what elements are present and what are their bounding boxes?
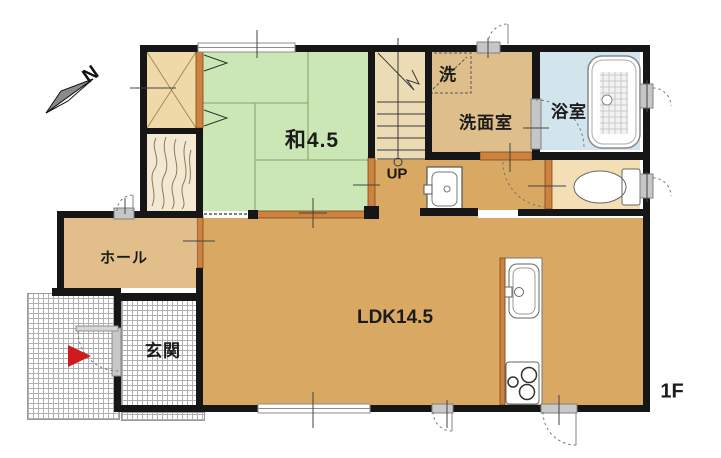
toilet-door xyxy=(545,158,552,209)
room-label-laundry: 洗 xyxy=(439,61,457,86)
stairs-floor xyxy=(375,52,425,160)
door-ldk-south-small xyxy=(432,404,453,413)
room-label-washitsu: 和4.5 xyxy=(285,124,339,154)
stairs-up-label: UP xyxy=(387,166,408,183)
entrance-door xyxy=(112,328,121,376)
room-label-bathroom: 浴室 xyxy=(551,98,587,123)
senmen-window-arc xyxy=(488,24,508,44)
north-arrow-icon xyxy=(46,79,93,113)
floor-label: 1F xyxy=(660,381,683,404)
room-label-genkan: 玄関 xyxy=(145,337,181,362)
room-label-hall: ホール xyxy=(100,247,148,268)
kitchen xyxy=(504,258,542,405)
washitsu-fusuma xyxy=(256,211,368,218)
room-label-senmenshitsu: 洗面室 xyxy=(459,109,513,134)
senmenshitsu-door xyxy=(480,152,532,160)
window-ldk-south xyxy=(258,404,370,413)
kitchen-counter-edge xyxy=(500,258,505,405)
entrance-door-panel xyxy=(76,326,118,331)
toilet xyxy=(574,169,640,205)
toilet-window-arc xyxy=(653,178,671,196)
bathtub xyxy=(588,56,640,148)
floor-plan: 和4.5 LDK14.5 洗面室 洗 浴室 ホール 玄関 UP 1F N xyxy=(0,0,721,458)
window-washitsu-north xyxy=(198,43,295,52)
ldk-hallway-floor xyxy=(478,158,545,210)
ldk-small-door-arc xyxy=(433,412,452,431)
bath-window-arc xyxy=(653,88,671,106)
entry-marker xyxy=(68,345,91,367)
closet-door xyxy=(196,52,203,128)
genkan-step-edge xyxy=(117,293,203,301)
bath-door xyxy=(531,99,541,149)
wash-basin xyxy=(424,167,462,211)
room-label-ldk: LDK14.5 xyxy=(357,307,433,329)
